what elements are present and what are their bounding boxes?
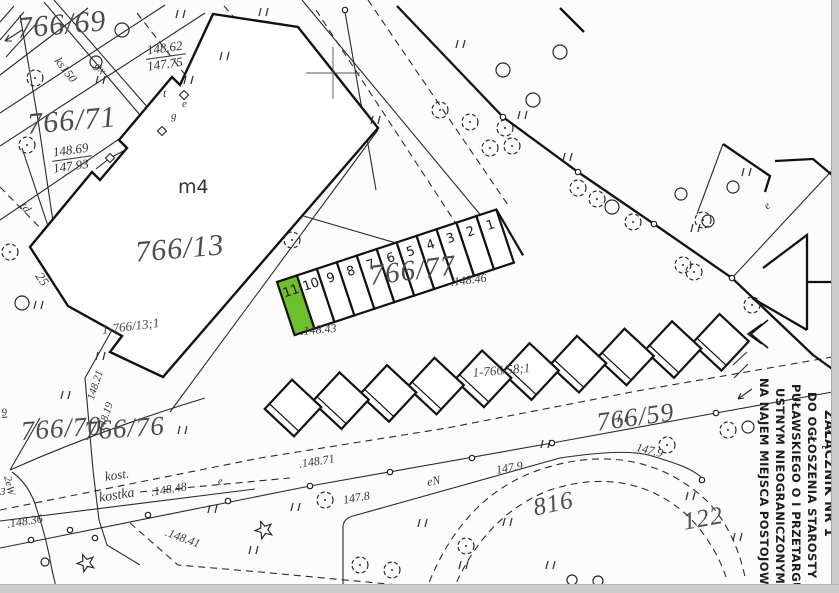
survey-node-icon	[67, 527, 72, 532]
deciduous-tree-icon	[458, 538, 474, 554]
survey-node-icon	[469, 455, 474, 460]
deciduous-tree-icon	[589, 191, 605, 207]
garage-unit	[360, 365, 417, 422]
grass-mark-icon	[61, 391, 70, 399]
grass-mark-icon	[518, 111, 527, 119]
garage-unit	[312, 372, 369, 429]
survey-node-icon	[307, 483, 312, 488]
garage-unit	[550, 336, 607, 393]
grass-mark-icon	[176, 10, 185, 18]
tree-circle-icon	[526, 93, 540, 107]
grass-mark-icon	[742, 168, 751, 176]
grass-mark-icon	[563, 153, 572, 161]
main-boundary-line	[397, 6, 838, 373]
deciduous-tree-icon	[462, 114, 478, 130]
survey-node-icon	[651, 221, 656, 226]
deciduous-tree-icon	[504, 138, 520, 154]
deciduous-tree-icon	[695, 212, 711, 228]
dashed-arc-inner	[452, 481, 726, 593]
survey-node-icon	[549, 440, 554, 445]
tree-circle-icon	[496, 63, 510, 77]
map-label: e	[182, 99, 187, 110]
deciduous-tree-icon	[744, 297, 760, 313]
cadastral-map: 1110987654321 766/69766/71766/13766/7776…	[0, 0, 839, 593]
garage-unit	[692, 314, 749, 371]
grass-mark-icon	[178, 426, 187, 434]
tree-circle-icon	[605, 200, 619, 214]
star-symbol-icon	[253, 520, 273, 540]
map-label: g	[171, 111, 177, 122]
deciduous-tree-icon	[675, 257, 691, 273]
garage-unit	[597, 329, 654, 386]
grass-mark-icon	[34, 301, 43, 309]
garage-unit	[265, 380, 322, 437]
annotation-line: USTNYM NIEOGRANICZONYM	[772, 326, 788, 593]
annotation-line: NA NAJEM MIEJSCA POSTOJOWEGO	[756, 326, 772, 593]
deciduous-tree-icon	[686, 264, 702, 280]
deciduous-tree-icon	[570, 180, 586, 196]
survey-node-icon	[500, 114, 505, 119]
map-label: m4	[178, 178, 209, 197]
deciduous-tree-icon	[384, 562, 400, 578]
margin-annotation: ZAŁĄCZNIK NR 1 DO OGŁOSZENIA STAROSTY PU…	[752, 326, 836, 593]
tree-circle-icon	[702, 215, 714, 227]
thick-lines	[397, 6, 838, 373]
grass-mark-icon	[259, 8, 268, 16]
survey-node-icon	[387, 469, 392, 474]
elevation-fraction: 148.69147.93	[50, 140, 93, 175]
arrow-icon	[738, 389, 752, 399]
survey-node-icon	[575, 169, 580, 174]
survey-node-icon	[699, 477, 704, 482]
deciduous-tree-icon	[625, 214, 641, 230]
garage-unit	[645, 321, 702, 378]
map-label: .148.43	[300, 322, 337, 337]
survey-node-icon	[145, 512, 150, 517]
tree-circle-icon	[727, 181, 739, 193]
map-label: 766/13	[134, 230, 226, 268]
survey-node-icon	[225, 498, 230, 503]
annotation-line: DO OGŁOSZENIA STAROSTY	[804, 326, 820, 593]
grass-mark-icon	[249, 546, 258, 554]
en-utility-line	[343, 458, 560, 593]
map-label: eN	[426, 474, 441, 488]
annotation-line: PUŁAWSKIEGO O I PRZETARGU	[788, 326, 804, 593]
tree-circle-icon	[675, 188, 687, 200]
grass-mark-icon	[96, 352, 105, 360]
grass-mark-icon	[503, 518, 512, 526]
grass-mark-icon	[291, 503, 300, 511]
map-label: 766/71	[26, 102, 118, 140]
grass-mark-icon	[691, 224, 700, 232]
map-label: kost.	[104, 467, 130, 483]
deciduous-tree-icon	[720, 422, 736, 438]
tree-circle-icon	[41, 558, 49, 566]
grass-mark-icon	[733, 533, 742, 541]
deciduous-tree-icon	[317, 492, 333, 508]
elevation-fraction: 148.62147.75	[144, 38, 187, 73]
survey-node-icon	[342, 7, 347, 12]
survey-node-icon	[92, 535, 97, 540]
deciduous-tree-icon	[2, 244, 18, 260]
tree-circle-icon	[553, 45, 567, 59]
grass-mark-icon	[456, 40, 465, 48]
map-label: t	[163, 87, 166, 99]
map-label: 766/69	[16, 6, 108, 44]
garage-unit	[407, 358, 464, 415]
scan-edge-right	[831, 0, 839, 593]
deciduous-tree-icon	[482, 140, 498, 156]
deciduous-tree-icon	[352, 557, 368, 573]
survey-node-icon	[729, 275, 734, 280]
grass-mark-icon	[686, 492, 695, 500]
grass-mark-icon	[418, 519, 427, 527]
survey-node-icon	[713, 410, 718, 415]
star-symbol-icon	[75, 553, 95, 573]
grass-mark-icon	[208, 505, 217, 513]
grass-mark-icon	[546, 561, 555, 569]
survey-node-icon	[28, 537, 33, 542]
deciduous-tree-icon	[432, 102, 448, 118]
scan-edge-bottom	[0, 584, 839, 593]
tree-circle-icon	[15, 296, 29, 310]
map-label: 9	[1, 408, 7, 419]
